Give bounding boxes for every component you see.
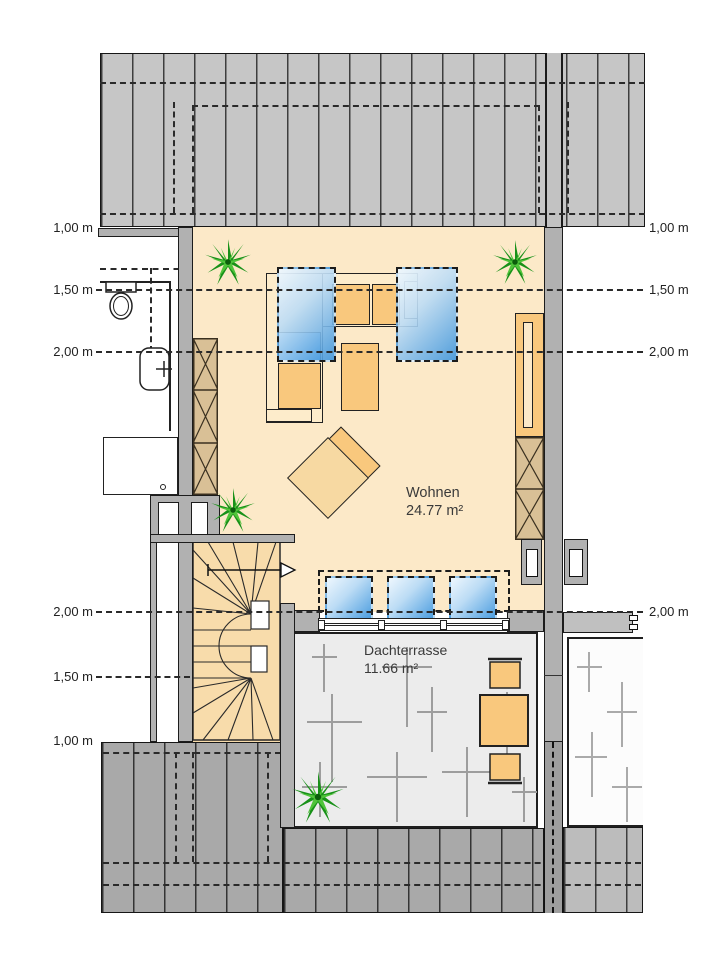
wall-top-left-stub	[98, 228, 190, 237]
dim-label-left: 1,00 m	[41, 733, 93, 748]
roof-dash-wall-projection	[567, 102, 569, 213]
room-area: 24.77 m²	[406, 502, 463, 520]
roof-dash-wall-projection	[267, 752, 269, 862]
toilet-icon	[103, 280, 141, 322]
wall-party-east	[544, 227, 563, 742]
wall-room-west	[178, 227, 193, 742]
wall-end-joint	[629, 615, 638, 621]
wall-party-centerline	[552, 742, 554, 913]
room-area: 11.66 m²	[364, 659, 447, 677]
door-opening	[158, 502, 179, 535]
plant-icon	[210, 487, 256, 533]
wardrobe-west-crosshatch	[193, 338, 218, 495]
wall-stair-top	[150, 534, 295, 543]
party-wall-roof-top	[545, 53, 563, 227]
roof-window	[277, 267, 336, 362]
wall-joint-line	[544, 675, 563, 676]
dim-label-right: 2,00 m	[649, 604, 689, 619]
wardrobe-east-crosshatch	[515, 437, 544, 540]
height-line-200-south	[96, 611, 643, 613]
dim-label-left: 1,00 m	[41, 220, 93, 235]
plant-icon	[291, 770, 345, 824]
door-knob	[160, 484, 166, 490]
dim-label-left: 2,00 m	[41, 604, 93, 619]
coffee-table	[341, 343, 379, 411]
dim-label-left: 1,50 m	[41, 669, 93, 684]
bath-roof-edge-dash	[100, 268, 190, 270]
bath-storage-room	[103, 437, 178, 495]
plant-icon	[492, 239, 538, 285]
roof-dash-wall-projection	[175, 752, 177, 862]
dim-label-left: 2,00 m	[41, 344, 93, 359]
neighbor-terrace-tiles	[567, 637, 643, 827]
sideboard-slot	[523, 322, 533, 428]
terrace-chair-south	[488, 750, 522, 786]
room-label-wohnen: Wohnen 24.77 m²	[406, 484, 463, 520]
roof-window	[396, 267, 458, 362]
dim-label-right: 1,50 m	[649, 282, 689, 297]
height-line-200	[96, 351, 643, 353]
roof-hatch-bottom-center	[283, 828, 544, 913]
wall-south-east-piece	[507, 610, 544, 632]
sofa-cushion	[278, 363, 321, 409]
chimney-flue	[526, 549, 538, 577]
window-mullion	[440, 620, 447, 630]
wall-end-joint	[629, 624, 638, 630]
room-name: Dachterrasse	[364, 641, 447, 659]
dim-label-left: 1,50 m	[41, 282, 93, 297]
window-mullion	[502, 620, 509, 630]
roof-hatch-bottom-neighbor	[563, 827, 643, 913]
roof-dash-line	[100, 213, 645, 215]
chimney-flue	[569, 549, 583, 577]
sofa-foot	[266, 409, 312, 422]
roof-dash-wall-projection	[192, 752, 194, 862]
roof-dash-wall-projection	[173, 102, 175, 213]
wall-neighbor-block	[563, 612, 633, 633]
window-mullion	[378, 620, 385, 630]
room-label-dachterrasse: Dachterrasse 11.66 m²	[364, 641, 447, 677]
height-line-150-south	[96, 676, 190, 678]
height-line-150	[96, 289, 643, 291]
roof-projected-room-outline	[192, 105, 540, 213]
door-opening	[191, 502, 208, 535]
plant-icon	[204, 238, 252, 286]
terrace-table	[479, 694, 529, 747]
terrace-chair-north	[488, 656, 522, 692]
window-mullion	[318, 620, 325, 630]
window-frame-innerline	[322, 623, 506, 626]
dim-label-right: 2,00 m	[649, 344, 689, 359]
floor-plan-canvas: 1,00 m 1,50 m 2,00 m 2,00 m 1,50 m 1,00 …	[0, 0, 717, 960]
room-name: Wohnen	[406, 484, 463, 502]
dim-label-right: 1,00 m	[649, 220, 689, 235]
roof-dash-line	[100, 82, 645, 84]
